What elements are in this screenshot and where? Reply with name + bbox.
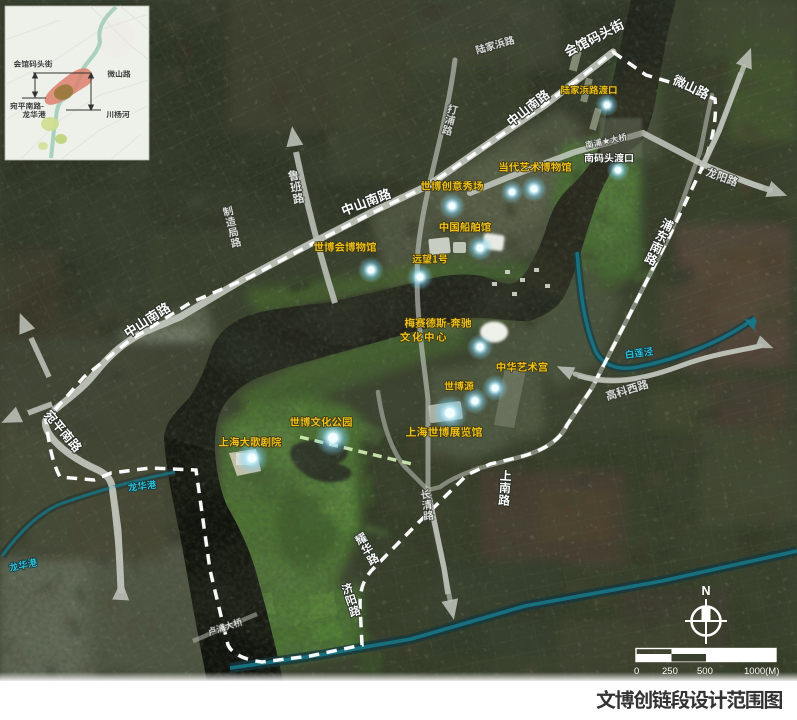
svg-text:N: N [701,584,710,598]
